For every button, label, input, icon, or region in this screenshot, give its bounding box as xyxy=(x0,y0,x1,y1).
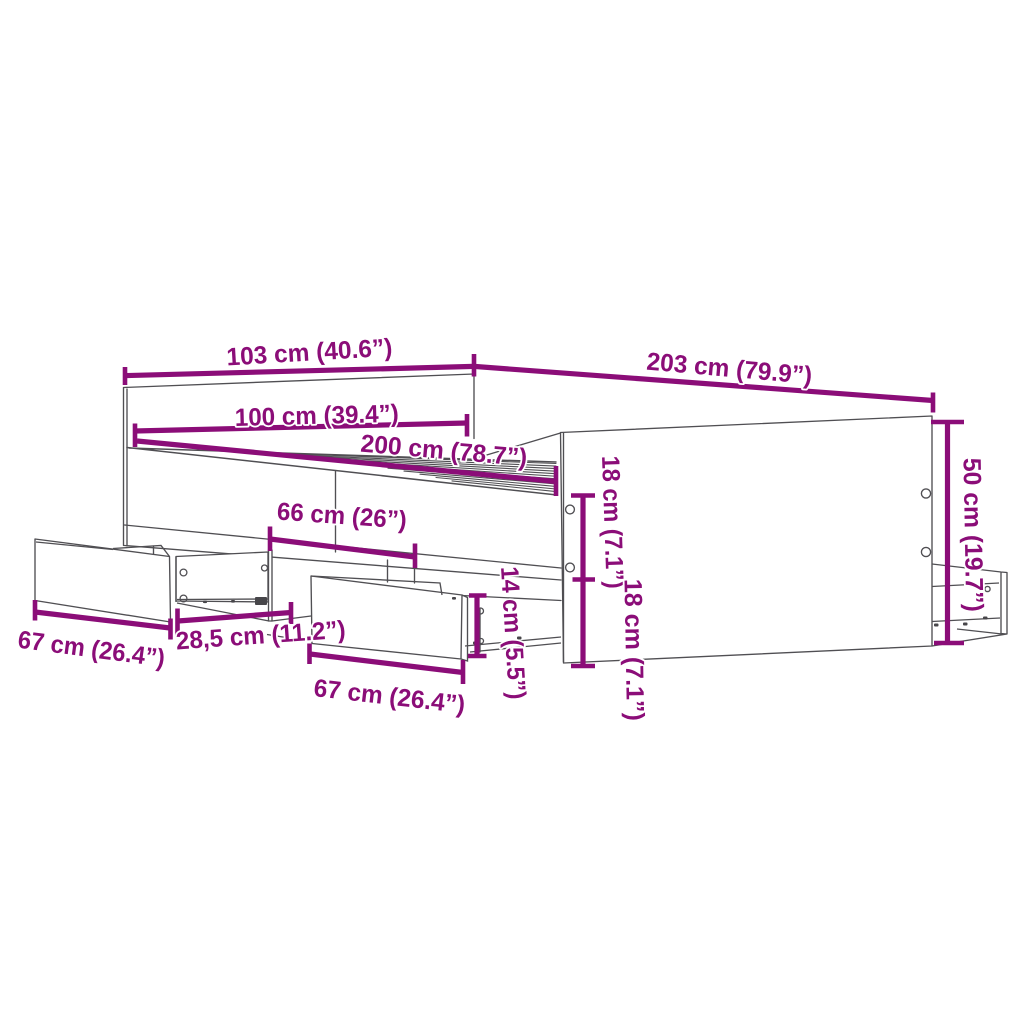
svg-text:100 cm (39.4”): 100 cm (39.4”) xyxy=(234,400,399,432)
svg-text:50 cm (19.7”): 50 cm (19.7”) xyxy=(958,458,989,612)
svg-text:18 cm (7.1”): 18 cm (7.1”) xyxy=(596,455,629,589)
svg-text:18 cm (7.1”): 18 cm (7.1”) xyxy=(619,579,649,721)
